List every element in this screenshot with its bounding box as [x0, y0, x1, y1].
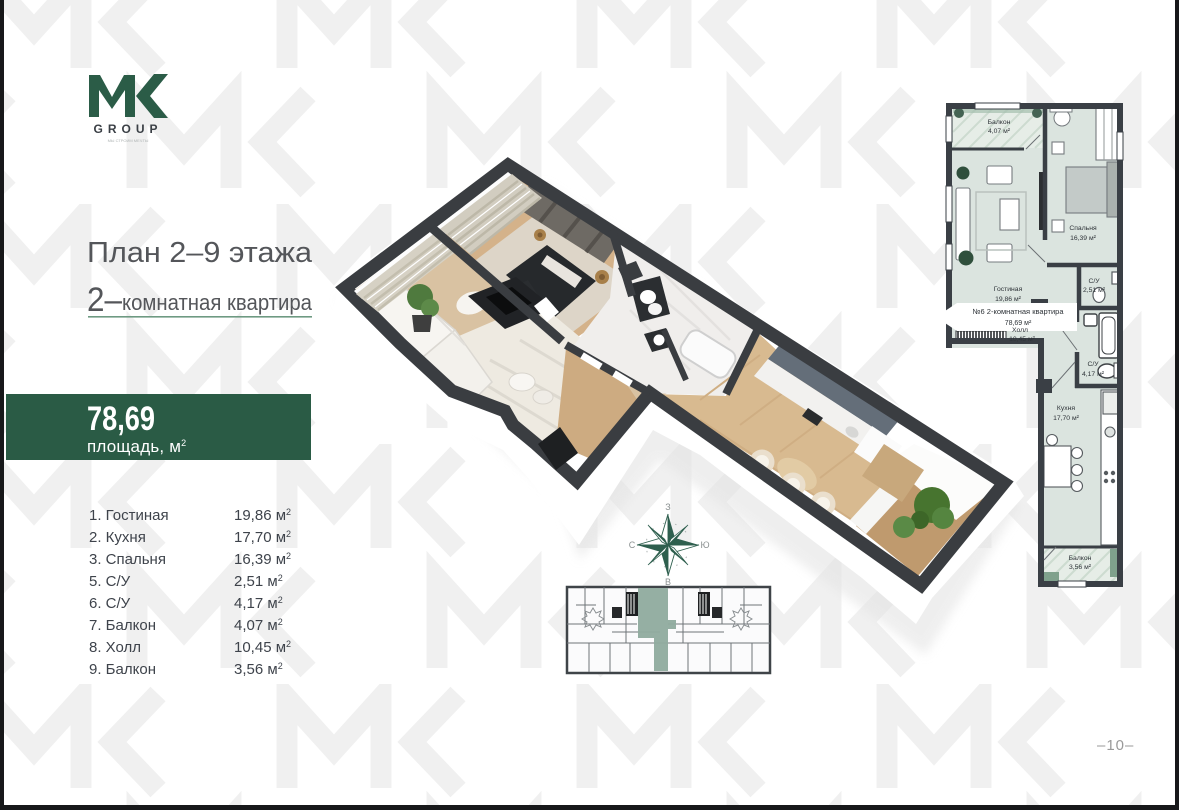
- svg-text:–10–: –10–: [1097, 737, 1134, 754]
- svg-text:4,17 м2: 4,17 м2: [234, 595, 283, 612]
- svg-text:С/У: С/У: [1088, 278, 1100, 285]
- svg-text:2,51 м2: 2,51 м2: [234, 573, 283, 590]
- svg-text:5. С/У: 5. С/У: [89, 573, 131, 590]
- svg-text:№6 2-комнатная квартира: №6 2-комнатная квартира: [972, 307, 1064, 316]
- svg-text:3. Спальня: 3. Спальня: [89, 551, 166, 568]
- svg-text:78,69: 78,69: [87, 400, 155, 438]
- svg-text:Гостиная: Гостиная: [994, 286, 1023, 293]
- svg-text:4,07 м2: 4,07 м2: [234, 617, 283, 634]
- svg-text:17,70 м²: 17,70 м²: [1053, 415, 1080, 422]
- svg-text:Спальня: Спальня: [1069, 225, 1097, 232]
- svg-text:9. Балкон: 9. Балкон: [89, 661, 156, 678]
- svg-text:4,17 м²: 4,17 м²: [1082, 371, 1105, 378]
- svg-text:Холл: Холл: [1012, 327, 1028, 334]
- svg-text:Ю: Ю: [700, 540, 709, 550]
- svg-text:16,39 м2: 16,39 м2: [234, 551, 291, 568]
- svg-text:7. Балкон: 7. Балкон: [89, 617, 156, 634]
- svg-text:GROUP: GROUP: [93, 122, 162, 136]
- svg-text:Балкон: Балкон: [1069, 555, 1092, 562]
- svg-text:6. С/У: 6. С/У: [89, 595, 131, 612]
- svg-text:1. Гостиная: 1. Гостиная: [89, 507, 169, 524]
- svg-text:С: С: [629, 540, 636, 550]
- svg-text:площадь, м2: площадь, м2: [87, 437, 186, 456]
- svg-text:3,56 м2: 3,56 м2: [234, 661, 283, 678]
- svg-text:10,45 м2: 10,45 м2: [234, 639, 291, 656]
- svg-text:78,69 м²: 78,69 м²: [1005, 320, 1032, 327]
- svg-text:План 2–9 этажа: План 2–9 этажа: [87, 237, 313, 269]
- svg-text:З: З: [665, 502, 670, 512]
- svg-text:19,86 м²: 19,86 м²: [995, 296, 1022, 303]
- svg-text:16,39 м²: 16,39 м²: [1070, 235, 1097, 242]
- svg-text:19,86 м2: 19,86 м2: [234, 507, 291, 524]
- svg-text:8. Холл: 8. Холл: [89, 639, 141, 656]
- svg-text:10,45 м²: 10,45 м²: [1009, 336, 1036, 343]
- svg-text:Кухня: Кухня: [1057, 405, 1076, 412]
- svg-text:4,07 м²: 4,07 м²: [988, 128, 1011, 135]
- svg-text:2,51 м²: 2,51 м²: [1083, 287, 1106, 294]
- svg-text:В: В: [665, 577, 671, 587]
- svg-text:С/У: С/У: [1087, 361, 1099, 368]
- svg-text:МЫ СТРОИМ МЕЧТЫ: МЫ СТРОИМ МЕЧТЫ: [108, 138, 149, 143]
- svg-text:17,70 м2: 17,70 м2: [234, 529, 291, 546]
- svg-text:3,56 м²: 3,56 м²: [1069, 564, 1092, 571]
- svg-text:Балкон: Балкон: [988, 119, 1011, 126]
- svg-text:2. Кухня: 2. Кухня: [89, 529, 146, 546]
